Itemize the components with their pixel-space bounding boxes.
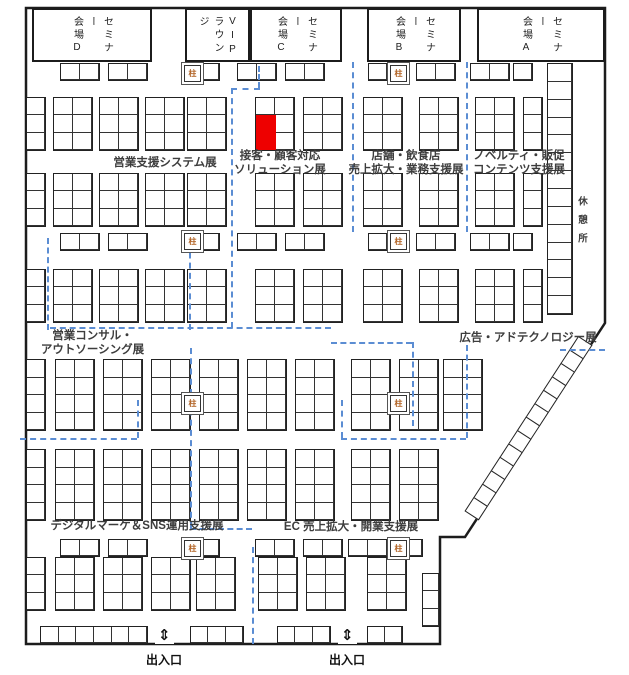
booth-cell (109, 540, 128, 556)
booth-cell (275, 540, 294, 556)
booth-block (53, 173, 93, 227)
booth-cell (200, 468, 219, 486)
booth-cell (548, 64, 572, 82)
booth-cell (419, 413, 438, 431)
zone-label-digital-marketing: デジタルマーケ＆SNS運用支援展 (38, 519, 236, 533)
booth-cell (476, 287, 495, 304)
booth-block (26, 269, 46, 323)
booth-cell (80, 540, 99, 556)
booth-cell (165, 287, 184, 304)
booth-cell (275, 209, 294, 226)
booth-cell (259, 593, 278, 610)
booth-block (363, 97, 403, 151)
booth-block (255, 539, 295, 557)
booth-cell (188, 115, 207, 132)
booth-cell (216, 593, 235, 610)
booth-cell (54, 133, 73, 150)
booth-cell (219, 413, 238, 431)
booth-cell (383, 270, 402, 287)
booth-cell (419, 378, 438, 396)
zone-label-customer-service: 接客・顧客対応ソリューション展 (220, 149, 340, 177)
booth-cell (152, 468, 171, 486)
booth-cell (27, 305, 45, 322)
booth-cell (54, 305, 73, 322)
booth-cell (476, 98, 495, 115)
booth-cell (267, 395, 286, 413)
booth-cell (420, 133, 439, 150)
booth-cell (73, 191, 92, 208)
zone-boundary-dash (258, 66, 260, 88)
entrance-arrow-left: ⇕ (155, 628, 174, 644)
booth-cell (256, 305, 275, 322)
booth-block (60, 63, 100, 81)
room-label: 会場D (70, 16, 85, 60)
booth-block (416, 63, 456, 81)
booth-block (145, 173, 185, 227)
booth-cell (61, 64, 80, 80)
booth-cell (278, 575, 297, 592)
booth-cell (383, 191, 402, 208)
booth-cell (119, 115, 138, 132)
booth-cell (129, 627, 147, 643)
booth-cell (80, 234, 99, 250)
booth-cell (56, 593, 75, 610)
booth-cell (548, 296, 572, 314)
booth-cell (188, 133, 207, 150)
room-label: VIP (225, 16, 240, 60)
booth-cell (323, 133, 342, 150)
booth-cell (152, 360, 171, 378)
rest-area-label: 休憩所 (574, 196, 588, 252)
booth-cell (495, 191, 514, 208)
booth-cell (104, 360, 123, 378)
booth-cell (56, 575, 75, 592)
booth-cell (364, 191, 383, 208)
booth-cell (171, 503, 190, 521)
seminar-room-c: セミナー会場C (250, 8, 342, 62)
booth-block (200, 539, 220, 557)
booth-block (99, 97, 139, 151)
booth-cell (27, 503, 45, 521)
booth-cell (27, 287, 45, 304)
booth-cell (73, 287, 92, 304)
booth-block (419, 97, 459, 151)
booth-block (26, 173, 46, 227)
zone-boundary-dash (412, 342, 414, 426)
booth-block (295, 449, 335, 521)
booth-cell (420, 287, 439, 304)
booth-cell (323, 115, 342, 132)
booth-cell (248, 360, 267, 378)
zone-boundary-dash (252, 547, 254, 644)
booth-cell (238, 64, 257, 80)
booth-cell (352, 378, 371, 396)
booth-cell (171, 413, 190, 431)
booth-cell (123, 395, 142, 413)
booth-cell (524, 115, 542, 132)
booth-block (285, 63, 325, 81)
booth-cell (219, 503, 238, 521)
booth-cell (423, 609, 439, 626)
booth-cell (56, 468, 75, 486)
pillar-marker: 柱 (390, 233, 407, 250)
booth-cell (439, 209, 458, 226)
booth-cell (27, 360, 45, 378)
booth-cell (207, 209, 226, 226)
booth-block (277, 626, 331, 644)
booth-cell (41, 627, 59, 643)
booth-cell (548, 100, 572, 118)
booth-block (60, 539, 100, 557)
booth-block (199, 359, 239, 431)
booth-cell (313, 627, 330, 643)
pillar-marker: 柱 (184, 233, 201, 250)
booth-cell (305, 64, 324, 80)
booth-cell (152, 503, 171, 521)
booth-cell (75, 450, 94, 468)
booth-cell (371, 503, 390, 521)
booth-cell (146, 115, 165, 132)
booth-cell (371, 413, 390, 431)
booth-cell (75, 413, 94, 431)
zone-label-sales-consulting: 営業コンサル・アウトソーシング展 (30, 329, 155, 357)
booth-cell (387, 558, 406, 575)
booth-cell (364, 98, 383, 115)
booth-cell (304, 305, 323, 322)
booth-cell (296, 468, 315, 486)
booth-block (470, 63, 510, 81)
booth-cell (152, 558, 171, 575)
booth-cell (200, 360, 219, 378)
booth-cell (165, 98, 184, 115)
seminar-room-a: セミナー会場A (477, 8, 605, 62)
booth-cell (56, 450, 75, 468)
booth-cell (315, 450, 334, 468)
booth-cell (548, 189, 572, 207)
booth-cell (371, 395, 390, 413)
booth-cell (439, 270, 458, 287)
booth-cell (385, 627, 402, 643)
booth-block (60, 233, 100, 251)
booth-block (199, 449, 239, 521)
booth-cell (104, 468, 123, 486)
zone-boundary-dash (231, 88, 233, 328)
booth-cell (27, 558, 45, 575)
zone-boundary-dash (341, 438, 466, 440)
booth-cell (171, 468, 190, 486)
booth-cell (123, 503, 142, 521)
booth-cell (54, 287, 73, 304)
booth-cell (436, 64, 455, 80)
booth-cell (27, 378, 45, 396)
booth-block (306, 557, 346, 611)
booth-cell (27, 395, 45, 413)
booth-cell (296, 485, 315, 503)
booth-cell (59, 627, 77, 643)
booth-cell (296, 450, 315, 468)
booth-cell (56, 378, 75, 396)
booth-cell (56, 503, 75, 521)
pillar-marker: 柱 (390, 540, 407, 557)
booth-cell (383, 133, 402, 150)
booth-cell (257, 234, 276, 250)
booth-cell (100, 133, 119, 150)
booth-cell (420, 191, 439, 208)
booth-cell (207, 305, 226, 322)
booth-cell (419, 468, 438, 486)
booth-block (200, 63, 220, 81)
booth-cell (304, 540, 323, 556)
booth-cell (439, 133, 458, 150)
booth-cell (275, 115, 294, 132)
booth-cell (400, 360, 419, 378)
booth-cell (495, 98, 514, 115)
booth-cell (123, 378, 142, 396)
booth-cell (104, 395, 123, 413)
booth-block (196, 557, 236, 611)
vip-lounge: VIPラウンジ (185, 8, 250, 62)
booth-cell (275, 305, 294, 322)
booth-cell (278, 593, 297, 610)
booth-cell (326, 558, 345, 575)
booth-cell (476, 191, 495, 208)
booth-cell (73, 174, 92, 191)
booth-cell (400, 450, 419, 468)
booth-cell (326, 575, 345, 592)
booth-cell (349, 540, 368, 556)
booth-cell (207, 115, 226, 132)
booth-block (237, 63, 277, 81)
booth-block (187, 97, 227, 151)
booth-cell (219, 485, 238, 503)
booth-cell (267, 468, 286, 486)
booth-cell (295, 627, 312, 643)
booth-block (419, 269, 459, 323)
booth-cell (352, 360, 371, 378)
booth-block (258, 557, 298, 611)
booth-cell (200, 485, 219, 503)
booth-cell (315, 485, 334, 503)
booth-cell (286, 234, 305, 250)
booth-cell (27, 485, 45, 503)
booth-cell (112, 627, 130, 643)
zone-boundary-dash (137, 400, 139, 438)
booth-cell (439, 115, 458, 132)
booth-block (55, 449, 95, 521)
entrance-arrow-right: ⇕ (338, 628, 357, 644)
booth-cell (27, 450, 45, 468)
booth-cell (423, 591, 439, 608)
booth-cell (400, 413, 419, 431)
booth-cell (352, 450, 371, 468)
booth-cell (128, 540, 147, 556)
room-label: ラウンジ (195, 16, 225, 60)
booth-cell (368, 558, 387, 575)
booth-cell (119, 133, 138, 150)
booth-cell (27, 209, 45, 226)
booth-cell (315, 503, 334, 521)
booth-cell (248, 503, 267, 521)
booth-cell (146, 191, 165, 208)
booth-cell (420, 270, 439, 287)
booth-cell (219, 360, 238, 378)
booth-cell (152, 450, 171, 468)
booth-cell (100, 191, 119, 208)
booth-cell (490, 64, 509, 80)
booth-cell (152, 378, 171, 396)
booth-cell (371, 468, 390, 486)
booth-block (285, 233, 325, 251)
booth-block (523, 269, 543, 323)
booth-cell (524, 305, 542, 322)
booth-block (368, 63, 388, 81)
booth-cell (75, 503, 94, 521)
booth-cell (216, 558, 235, 575)
booth-cell (267, 503, 286, 521)
booth-cell (371, 450, 390, 468)
booth-cell (216, 575, 235, 592)
booth-cell (352, 413, 371, 431)
booth-cell (286, 64, 305, 80)
booth-cell (439, 191, 458, 208)
zone-label-ad-tech: 広告・アドテクノロジー展 (448, 331, 608, 345)
booth-cell (248, 450, 267, 468)
booth-cell (56, 485, 75, 503)
booth-cell (109, 234, 128, 250)
booth-cell (495, 287, 514, 304)
booth-cell (61, 234, 80, 250)
booth-cell (364, 133, 383, 150)
room-label: セミナー (407, 16, 437, 60)
booth-cell (75, 558, 94, 575)
booth-cell (171, 485, 190, 503)
booth-cell (304, 287, 323, 304)
booth-cell (73, 270, 92, 287)
booth-cell (248, 468, 267, 486)
booth-block (303, 173, 343, 227)
booth-cell (278, 627, 295, 643)
booth-cell (100, 115, 119, 132)
booth-cell (188, 98, 207, 115)
booth-cell (267, 450, 286, 468)
booth-cell (27, 174, 45, 191)
booth-cell (267, 485, 286, 503)
booth-block (40, 626, 148, 644)
entrance-label-left: 出入口 (138, 651, 190, 668)
booth-cell (146, 270, 165, 287)
booth-cell (119, 287, 138, 304)
booth-block (475, 97, 515, 151)
booth-block (351, 449, 391, 521)
booth-cell (256, 287, 275, 304)
booth-cell (197, 575, 216, 592)
room-label: 会場B (392, 16, 407, 60)
booth-cell (100, 98, 119, 115)
booth-cell (27, 115, 45, 132)
booth-cell (73, 305, 92, 322)
booth-cell (383, 287, 402, 304)
booth-cell (495, 270, 514, 287)
booth-cell (439, 98, 458, 115)
booth-cell (548, 243, 572, 261)
booth-cell (368, 575, 387, 592)
booth-block (348, 539, 388, 557)
booth-cell (188, 209, 207, 226)
booth-cell (165, 115, 184, 132)
booth-cell (208, 627, 225, 643)
booth-cell (219, 468, 238, 486)
booth-block (103, 449, 143, 521)
booth-cell (278, 558, 297, 575)
booth-block (103, 557, 143, 611)
room-label: セミナー (534, 16, 564, 60)
booth-block (99, 173, 139, 227)
booth-cell (315, 395, 334, 413)
seminar-room-b: セミナー会場B (367, 8, 461, 62)
room-label: 会場A (519, 16, 534, 60)
booth-cell (146, 133, 165, 150)
zone-boundary-dash (231, 88, 260, 90)
booth-cell (275, 98, 294, 115)
booth-cell (171, 575, 190, 592)
booth-block (190, 626, 244, 644)
booth-cell (165, 209, 184, 226)
booth-cell (207, 270, 226, 287)
booth-cell (256, 540, 275, 556)
booth-cell (27, 413, 45, 431)
booth-cell (238, 234, 257, 250)
booth-block (303, 539, 343, 557)
booth-block (108, 233, 148, 251)
booth-cell (123, 413, 142, 431)
booth-cell (368, 593, 387, 610)
booth-block (303, 269, 343, 323)
zone-boundary-dash (341, 400, 343, 438)
entrance-label-right: 出入口 (321, 651, 373, 668)
booth-cell (524, 270, 542, 287)
booth-cell (267, 413, 286, 431)
booth-block (237, 233, 277, 251)
booth-cell (80, 64, 99, 80)
booth-cell (444, 378, 463, 396)
zone-boundary-dash (190, 348, 192, 528)
booth-cell (400, 468, 419, 486)
booth-cell (104, 558, 123, 575)
booth-cell (188, 191, 207, 208)
booth-cell (56, 558, 75, 575)
booth-block (422, 573, 440, 627)
booth-cell (444, 360, 463, 378)
booth-cell (296, 378, 315, 396)
booth-cell (152, 575, 171, 592)
booth-cell (368, 627, 385, 643)
booth-cell (524, 191, 542, 208)
booth-block (53, 269, 93, 323)
zone-boundary-dash (20, 438, 137, 440)
booth-block (26, 97, 46, 151)
booth-block (513, 63, 533, 81)
booth-cell (548, 118, 572, 136)
booth-cell (104, 413, 123, 431)
booth-cell (423, 574, 439, 591)
booth-cell (54, 270, 73, 287)
booth-cell (248, 378, 267, 396)
booth-cell (476, 133, 495, 150)
booth-cell (364, 209, 383, 226)
pillar-marker: 柱 (390, 395, 407, 412)
booth-block (26, 359, 46, 431)
booth-cell (323, 98, 342, 115)
